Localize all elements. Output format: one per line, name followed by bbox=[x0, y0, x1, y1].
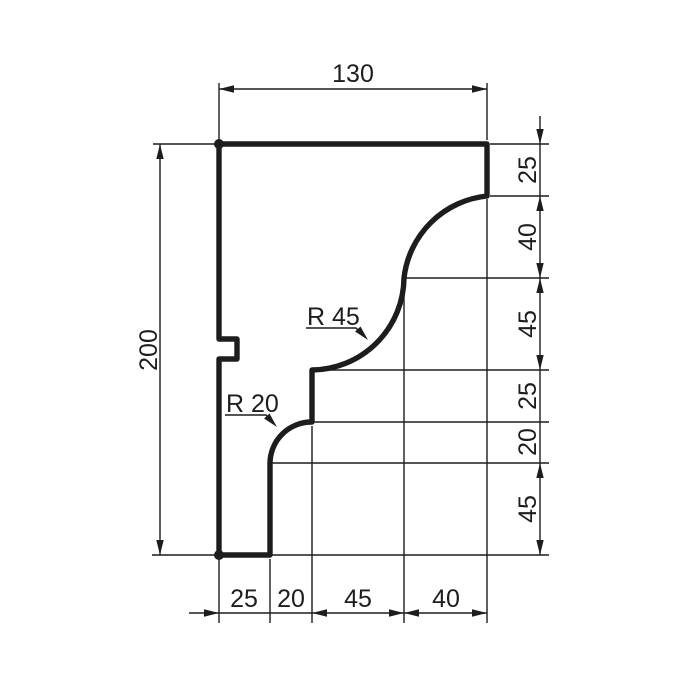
arrowhead bbox=[536, 463, 543, 478]
arrowhead bbox=[156, 540, 163, 555]
moulding-profile-drawing: 130 200 25 40 45 25 20 45 25 20 45 40 R … bbox=[0, 0, 686, 686]
arrowhead bbox=[156, 144, 163, 159]
dim-label-bottom-3: 40 bbox=[432, 585, 460, 613]
arrowhead bbox=[472, 85, 487, 92]
profile bbox=[214, 139, 487, 560]
dim-label-bottom-2: 45 bbox=[344, 585, 372, 613]
arrowhead bbox=[536, 129, 543, 144]
arrowhead bbox=[389, 609, 404, 616]
dim-label-bottom-0: 25 bbox=[230, 585, 258, 613]
arrowhead bbox=[404, 609, 419, 616]
arrowhead bbox=[219, 85, 234, 92]
radius-label-r20: R 20 bbox=[226, 390, 279, 418]
arrowhead bbox=[536, 196, 543, 211]
dim-label-top: 130 bbox=[332, 60, 374, 88]
arrowhead bbox=[536, 278, 543, 293]
radius-label-r45: R 45 bbox=[307, 303, 360, 331]
dim-label-right-0: 25 bbox=[514, 156, 542, 184]
dim-label-left: 200 bbox=[135, 329, 163, 371]
dim-label-bottom-1: 20 bbox=[277, 585, 305, 613]
technical-drawing-canvas: 130 200 25 40 45 25 20 45 25 20 45 40 R … bbox=[0, 0, 686, 686]
arrowhead bbox=[312, 609, 327, 616]
dim-label-right-4: 20 bbox=[514, 428, 542, 456]
dim-label-right-2: 45 bbox=[514, 310, 542, 338]
dim-label-right-1: 40 bbox=[514, 223, 542, 251]
profile-outline bbox=[219, 144, 487, 555]
arrowhead bbox=[536, 540, 543, 555]
arrowhead bbox=[536, 263, 543, 278]
arrowhead bbox=[536, 355, 543, 370]
arrowhead bbox=[472, 609, 487, 616]
dim-label-right-5: 45 bbox=[514, 495, 542, 523]
dim-label-right-3: 25 bbox=[514, 382, 542, 410]
radius-callouts: R 45 R 20 bbox=[225, 303, 371, 430]
arrowhead bbox=[204, 609, 219, 616]
